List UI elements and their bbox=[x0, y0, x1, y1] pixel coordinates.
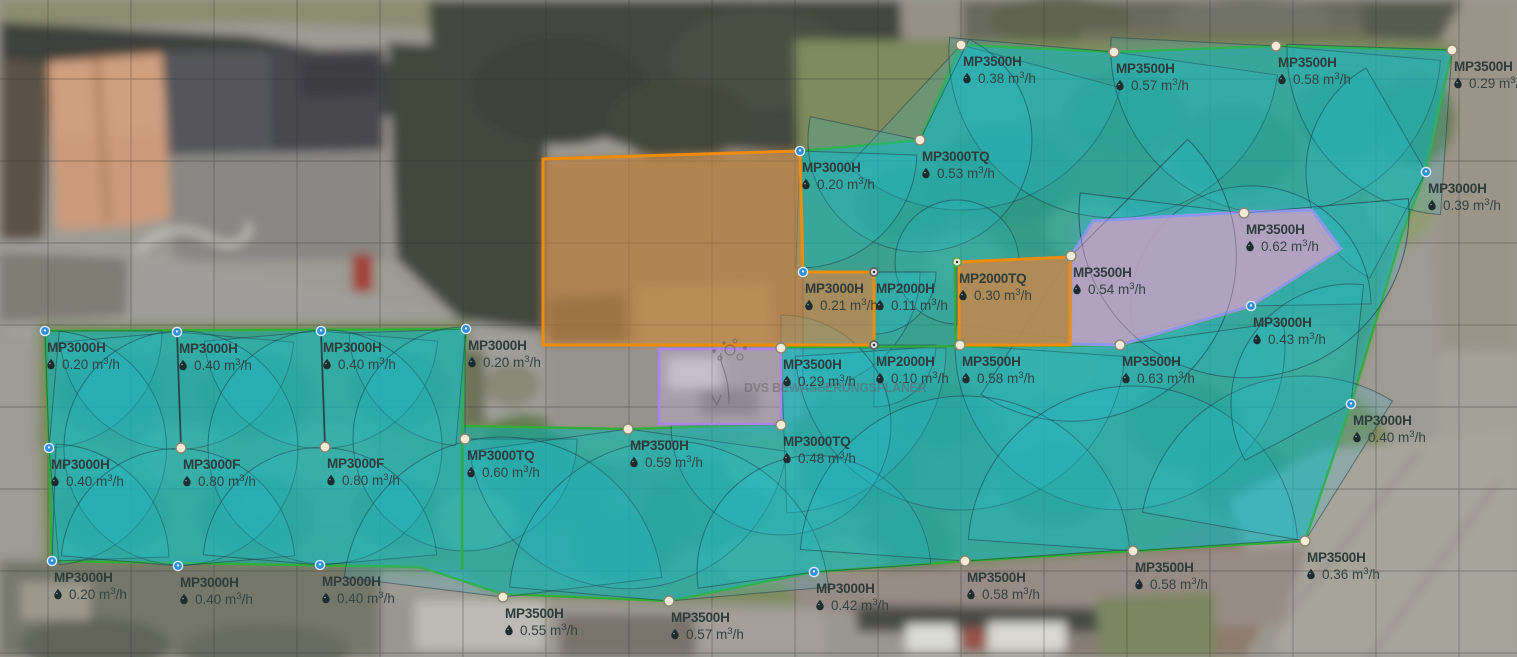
svg-text:0.58 m3/h: 0.58 m3/h bbox=[1150, 576, 1208, 592]
svg-text:MP3000H: MP3000H bbox=[180, 575, 239, 590]
svg-text:0.30 m3/h: 0.30 m3/h bbox=[974, 287, 1032, 303]
svg-text:0.58 m3/h: 0.58 m3/h bbox=[982, 586, 1040, 602]
svg-text:0.58 m3/h: 0.58 m3/h bbox=[977, 370, 1035, 386]
svg-text:0.57 m3/h: 0.57 m3/h bbox=[1131, 77, 1189, 93]
svg-text:MP3000TQ: MP3000TQ bbox=[922, 149, 989, 164]
svg-text:0.43 m3/h: 0.43 m3/h bbox=[1268, 331, 1326, 347]
svg-text:0.29 m3/h: 0.29 m3/h bbox=[798, 373, 856, 389]
svg-text:MP3500H: MP3500H bbox=[962, 354, 1021, 369]
svg-text:0.20 m3/h: 0.20 m3/h bbox=[483, 354, 541, 370]
svg-text:MP3000H: MP3000H bbox=[1253, 315, 1312, 330]
svg-text:MP3000H: MP3000H bbox=[802, 160, 861, 175]
svg-text:MP3000H: MP3000H bbox=[323, 340, 382, 355]
svg-text:0.63 m3/h: 0.63 m3/h bbox=[1137, 370, 1195, 386]
svg-text:0.60 m3/h: 0.60 m3/h bbox=[482, 464, 540, 480]
svg-text:MP3500H: MP3500H bbox=[1307, 550, 1366, 565]
svg-text:MP3000H: MP3000H bbox=[1428, 181, 1487, 196]
svg-text:MP3000TQ: MP3000TQ bbox=[467, 448, 534, 463]
svg-text:MP3000H: MP3000H bbox=[54, 570, 113, 585]
svg-text:0.11 m3/h: 0.11 m3/h bbox=[891, 297, 948, 313]
svg-text:MP3000H: MP3000H bbox=[816, 581, 875, 596]
svg-text:MP3500H: MP3500H bbox=[963, 54, 1022, 69]
svg-text:0.59 m3/h: 0.59 m3/h bbox=[645, 454, 703, 470]
svg-text:MP3000H: MP3000H bbox=[468, 338, 527, 353]
svg-text:MP2000TQ: MP2000TQ bbox=[959, 271, 1026, 286]
svg-text:MP3000H: MP3000H bbox=[51, 457, 110, 472]
svg-text:0.38 m3/h: 0.38 m3/h bbox=[978, 70, 1036, 86]
svg-text:MP3500H: MP3500H bbox=[1135, 560, 1194, 575]
svg-text:MP3500H: MP3500H bbox=[1073, 265, 1132, 280]
svg-text:0.53 m3/h: 0.53 m3/h bbox=[937, 165, 995, 181]
svg-text:0.20 m3/h: 0.20 m3/h bbox=[69, 586, 127, 602]
svg-text:0.80 m3/h: 0.80 m3/h bbox=[198, 473, 256, 489]
svg-text:MP3500H: MP3500H bbox=[630, 438, 689, 453]
svg-text:MP3000H: MP3000H bbox=[47, 340, 106, 355]
svg-text:MP3500H: MP3500H bbox=[1122, 354, 1181, 369]
svg-text:0.58 m3/h: 0.58 m3/h bbox=[1293, 71, 1351, 87]
svg-text:0.20 m3/h: 0.20 m3/h bbox=[62, 356, 120, 372]
svg-text:0.36 m3/h: 0.36 m3/h bbox=[1322, 566, 1380, 582]
svg-text:MP3500H: MP3500H bbox=[783, 357, 842, 372]
svg-text:MP3500H: MP3500H bbox=[967, 570, 1026, 585]
svg-text:0.20 m3/h: 0.20 m3/h bbox=[817, 176, 875, 192]
svg-text:0.55 m3/h: 0.55 m3/h bbox=[520, 622, 578, 638]
svg-text:0.54 m3/h: 0.54 m3/h bbox=[1088, 281, 1146, 297]
svg-text:MP3500H: MP3500H bbox=[1454, 59, 1513, 74]
svg-text:MP3500H: MP3500H bbox=[505, 606, 564, 621]
svg-text:0.40 m3/h: 0.40 m3/h bbox=[194, 357, 252, 373]
svg-text:MP2000H: MP2000H bbox=[876, 281, 935, 296]
svg-text:MP3000H: MP3000H bbox=[1353, 413, 1412, 428]
svg-text:0.29 m3/h: 0.29 m3/h bbox=[1469, 75, 1517, 91]
svg-text:MP3000H: MP3000H bbox=[322, 574, 381, 589]
svg-text:MP3000H: MP3000H bbox=[805, 281, 864, 296]
svg-text:0.40 m3/h: 0.40 m3/h bbox=[195, 591, 253, 607]
svg-text:MP3000TQ: MP3000TQ bbox=[783, 434, 850, 449]
svg-text:MP3500H: MP3500H bbox=[1246, 222, 1305, 237]
svg-text:0.21 m3/h: 0.21 m3/h bbox=[820, 297, 878, 313]
svg-text:MP3500H: MP3500H bbox=[1278, 55, 1337, 70]
svg-text:0.40 m3/h: 0.40 m3/h bbox=[66, 473, 124, 489]
svg-text:MP3000H: MP3000H bbox=[179, 341, 238, 356]
svg-text:MP3000F: MP3000F bbox=[183, 457, 240, 472]
svg-text:MP2000H: MP2000H bbox=[876, 354, 935, 369]
svg-text:0.42 m3/h: 0.42 m3/h bbox=[831, 597, 889, 613]
svg-text:0.62 m3/h: 0.62 m3/h bbox=[1261, 238, 1319, 254]
svg-text:0.40 m3/h: 0.40 m3/h bbox=[1368, 429, 1426, 445]
svg-text:0.40 m3/h: 0.40 m3/h bbox=[338, 356, 396, 372]
svg-text:0.10 m3/h: 0.10 m3/h bbox=[891, 370, 949, 386]
svg-text:MP3000F: MP3000F bbox=[327, 456, 384, 471]
svg-text:0.39 m3/h: 0.39 m3/h bbox=[1443, 197, 1501, 213]
svg-text:0.80 m3/h: 0.80 m3/h bbox=[342, 472, 400, 488]
svg-text:0.57 m3/h: 0.57 m3/h bbox=[686, 626, 744, 642]
svg-text:MP3500H: MP3500H bbox=[671, 610, 730, 625]
svg-text:0.48 m3/h: 0.48 m3/h bbox=[798, 450, 856, 466]
svg-text:0.40 m3/h: 0.40 m3/h bbox=[337, 590, 395, 606]
svg-text:MP3500H: MP3500H bbox=[1116, 61, 1175, 76]
